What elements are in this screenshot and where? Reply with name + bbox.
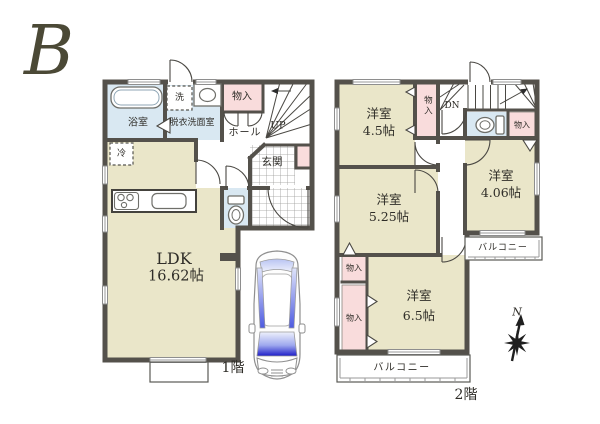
hall-label: ホール	[229, 127, 262, 139]
toilet-icon-2f	[476, 116, 504, 134]
closet-left-upper-label: 物入	[346, 263, 362, 272]
closet-left-lower-label: 物入	[346, 313, 362, 322]
compass-north-label: N	[512, 307, 522, 320]
room406-size-label: 4.06帖	[481, 186, 521, 200]
storage-1f-label: 物入	[232, 91, 252, 103]
stairs-down-label: DN	[444, 101, 459, 111]
balcony-right-label: バルコニー	[478, 243, 528, 253]
closet-tall-label: 物入	[422, 96, 432, 117]
ldk-size-label: 16.62帖	[148, 269, 204, 286]
floor1-label: 1階	[222, 360, 245, 376]
car-illustration	[249, 251, 305, 379]
room45-name-label: 洋室	[366, 107, 391, 121]
compass-icon	[504, 314, 530, 361]
bath-label: 浴室	[128, 117, 148, 129]
floor2-label: 2階	[455, 387, 478, 403]
closet-right-label: 物入	[514, 120, 530, 129]
fridge-label: 冷	[117, 149, 126, 159]
room45-size-label: 4.5帖	[363, 124, 395, 138]
entrance-label: 玄関	[262, 156, 283, 168]
kitchen-counter-icon	[112, 190, 196, 212]
room406-name-label: 洋室	[488, 169, 513, 183]
room65-name-label: 洋室	[406, 289, 431, 303]
entrance-closet	[296, 145, 311, 168]
toilet-icon-1f	[228, 196, 244, 224]
bathtub-icon	[111, 87, 162, 108]
balcony-bottom-label: バルコニー	[373, 362, 430, 374]
room525-size-label: 5.25帖	[369, 210, 409, 224]
floorplan-canvas: B	[0, 0, 600, 424]
sink-icon	[194, 84, 221, 106]
floor1-plan	[103, 60, 313, 382]
floorplan-drawing	[0, 0, 600, 424]
ldk-name-label: LDK	[156, 250, 191, 268]
room525-name-label: 洋室	[376, 193, 401, 207]
room65-size-label: 6.5帖	[403, 309, 435, 323]
room65-floor	[367, 255, 467, 352]
stairs-up-label: UP	[270, 120, 285, 132]
washer-label: 洗	[175, 93, 184, 103]
entrance-step	[150, 362, 208, 382]
washroom-label: 脱衣洗面室	[169, 118, 214, 128]
